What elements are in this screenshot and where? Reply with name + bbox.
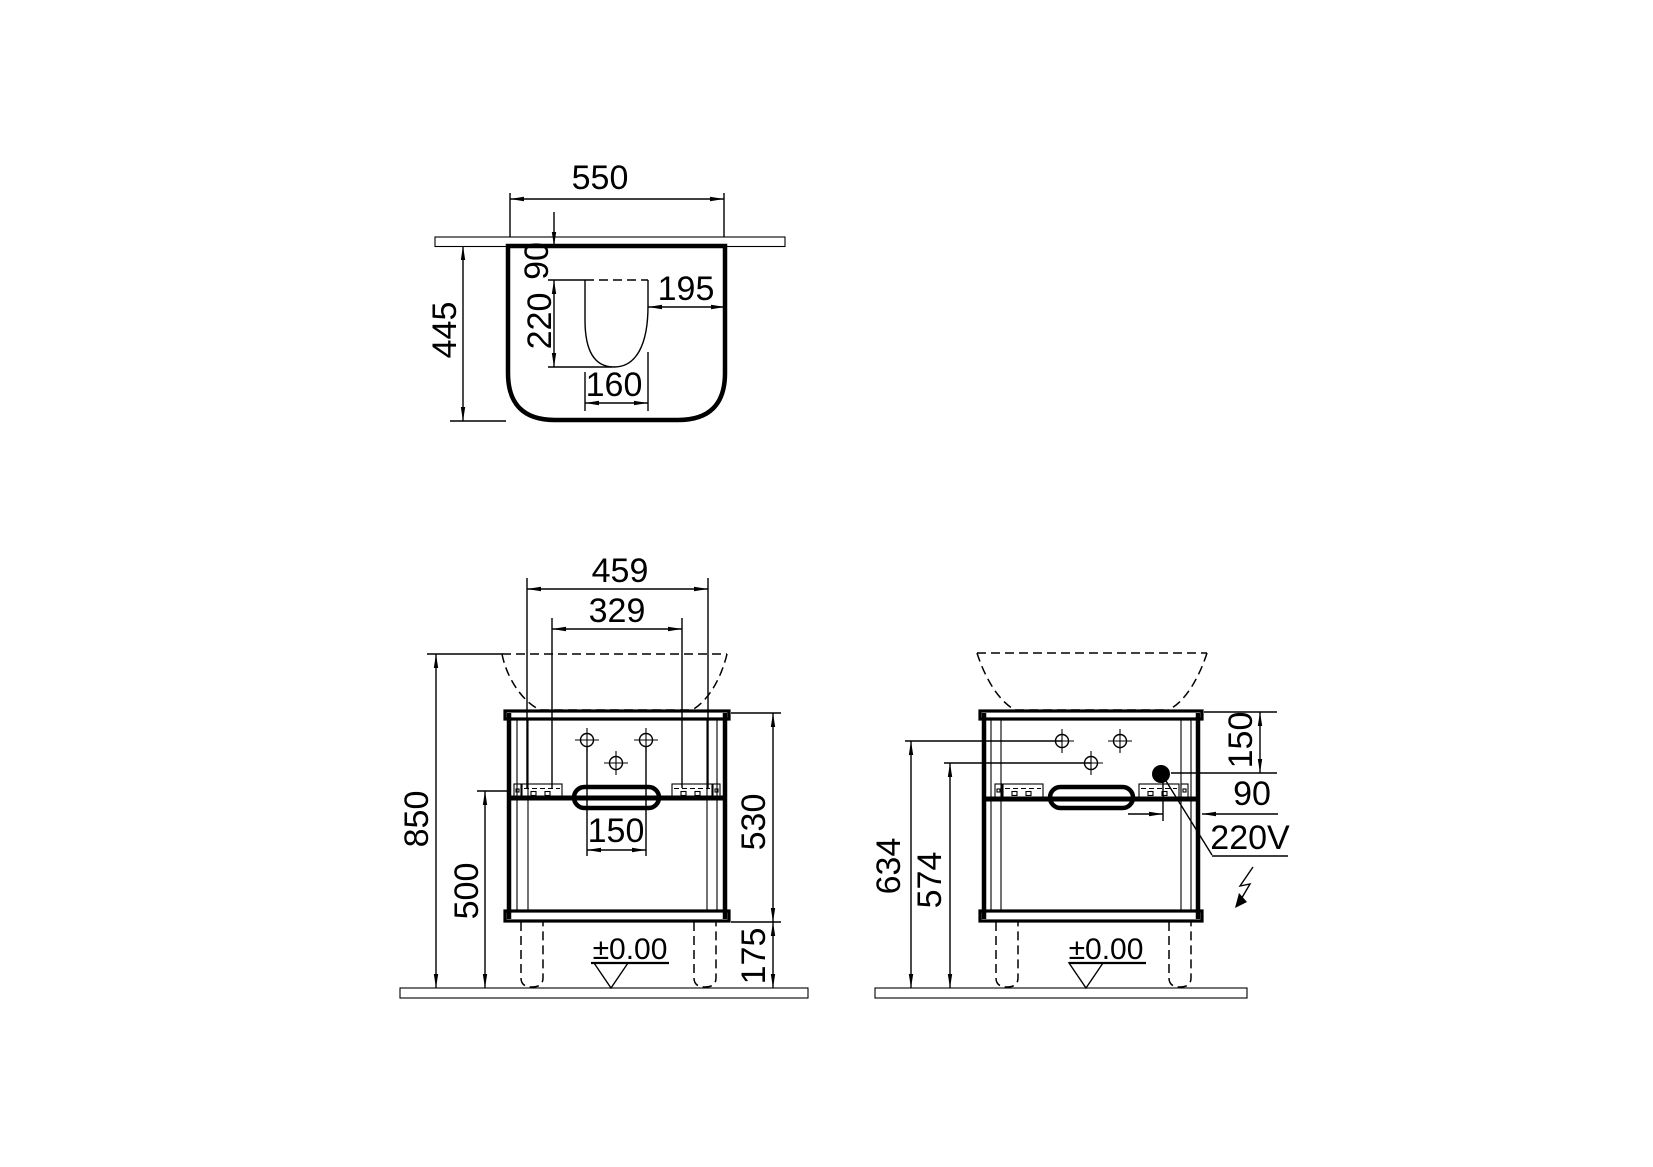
leg-right (694, 922, 716, 987)
drawer-slide-cap (1181, 784, 1188, 798)
leg-left (996, 922, 1018, 987)
technical-drawing-canvas: 550 445 90 220 195 160 (0, 0, 1653, 1167)
dim-label-459: 459 (592, 552, 649, 590)
dim-mount-span: 329 (552, 592, 682, 788)
washbasin-side (977, 653, 1207, 710)
dim-label-574: 574 (911, 852, 949, 909)
dim-label-90-top: 90 (518, 242, 556, 280)
electricity-icon (1235, 867, 1253, 908)
datum-symbol (594, 963, 628, 988)
floor-datum-side: ±0.00 (1069, 933, 1146, 988)
dim-total-height: 850 (398, 654, 503, 988)
dim-cutout-side-offset: 195 (648, 270, 725, 308)
dim-rail-height: 500 (448, 791, 510, 988)
drawer-slide-left (1003, 784, 1043, 798)
leg-left (521, 922, 543, 987)
dim-label-329: 329 (589, 592, 646, 630)
dim-label-634: 634 (870, 838, 908, 895)
dim-label-160: 160 (586, 366, 643, 404)
dim-label-850: 850 (398, 791, 436, 848)
dim-label-150-side: 150 (1222, 712, 1260, 769)
dim-label-530: 530 (735, 794, 773, 851)
dim-label-500: 500 (448, 863, 486, 920)
dim-label-90-side: 90 (1233, 775, 1271, 813)
dim-label-220: 220 (521, 293, 559, 350)
dim-label-150-front: 150 (588, 812, 645, 850)
dim-top-depth: 445 (426, 246, 506, 421)
voltage-label: 220V (1210, 819, 1290, 857)
datum-label: ±0.00 (1069, 933, 1144, 966)
top-view: 550 445 90 220 195 160 (426, 159, 785, 421)
leg-right (1169, 922, 1191, 987)
dim-leg-height: 175 (735, 922, 773, 988)
mounting-hole (604, 751, 628, 775)
power-outlet-dot (1152, 765, 1170, 783)
dim-top-width: 550 (510, 159, 724, 237)
datum-symbol (1069, 963, 1103, 988)
floor-section-side (875, 988, 1247, 998)
floor-datum-front: ±0.00 (591, 933, 669, 988)
basin-cutout (585, 280, 648, 367)
dim-cutout-offsets: 90 220 (518, 212, 612, 367)
front-view: 459 329 850 500 530 175 (398, 552, 808, 998)
leader-line (1166, 781, 1212, 855)
dim-label-175: 175 (735, 928, 773, 985)
dim-upper-hole-height: 634 (870, 741, 1062, 988)
side-view: 634 574 150 90 220V (870, 653, 1290, 998)
dim-basin-width: 459 (527, 552, 708, 788)
mounting-hole (1108, 729, 1132, 753)
dim-cutout-width: 160 (585, 352, 648, 411)
dim-cabinet-height: 530 (731, 713, 781, 922)
dim-label-445: 445 (426, 302, 464, 359)
washbasin-front (502, 654, 727, 710)
vanity-dimension-drawing: 550 445 90 220 195 160 (0, 0, 1653, 1167)
dim-socket-top-offset: 150 (1171, 712, 1277, 773)
datum-label: ±0.00 (593, 933, 668, 966)
floor-section-front (400, 988, 808, 998)
dim-label-550: 550 (572, 159, 629, 197)
dim-label-195: 195 (658, 270, 715, 308)
